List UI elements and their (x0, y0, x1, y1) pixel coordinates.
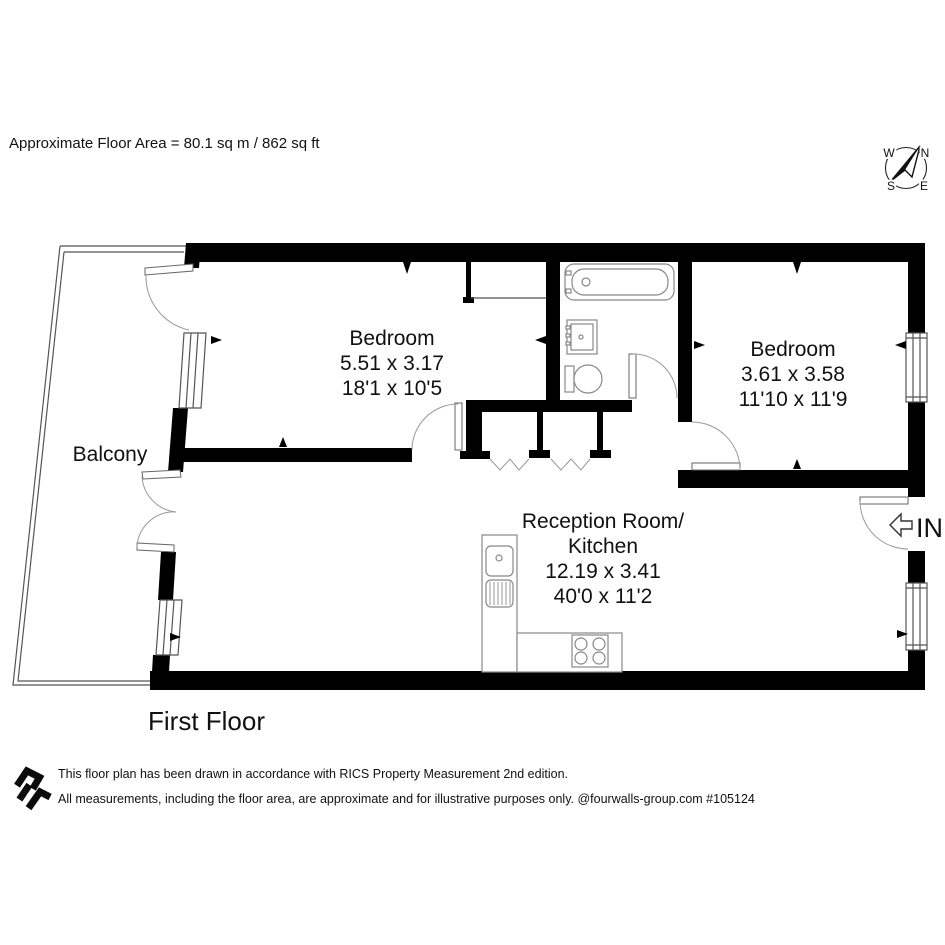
floor-area-note: Approximate Floor Area = 80.1 sq m / 862… (9, 135, 320, 152)
wall-right-2 (908, 400, 925, 497)
bedroom1-name: Bedroom (349, 327, 434, 350)
wall-closet-mid-foot (529, 450, 550, 458)
toilet (565, 365, 602, 393)
wall-left-corner (152, 655, 170, 672)
wall-left-mid (168, 408, 188, 472)
wall-closet-right-foot (590, 450, 611, 458)
reception-window (906, 583, 927, 650)
fourwalls-logo-icon (12, 767, 52, 811)
wall-closet-mid (537, 412, 543, 452)
entry-arrow-icon (890, 514, 912, 536)
bathroom-door (629, 354, 677, 398)
bathroom-sink (566, 320, 597, 354)
wall-right-1 (908, 262, 925, 335)
wall-bedroom2-west (678, 262, 692, 422)
wall-bedroom2-south (678, 470, 908, 488)
reception-label: Reception Room/ Kitchen 12.19 x 3.41 40'… (522, 510, 684, 608)
walls (150, 243, 925, 690)
balcony-label: Balcony (73, 443, 148, 466)
bedroom2-name: Bedroom (750, 338, 835, 361)
bathroom-fixtures (565, 264, 674, 393)
compass-east: E (920, 179, 928, 193)
reception-name-line1: Reception Room/ (522, 510, 684, 533)
balcony-window-lower (156, 600, 182, 655)
wall-closet-left-foot (460, 451, 490, 459)
bedroom1-metric: 5.51 x 3.17 (340, 352, 444, 375)
kitchen-sink (486, 546, 513, 607)
wall-bottom (150, 671, 925, 690)
compass-south: S (887, 179, 895, 193)
floorplan-drawing: W N S E Approximate Floor Area = 80.1 sq… (0, 0, 945, 945)
wall-top (186, 243, 925, 262)
footer-disclaimer-line1: This floor plan has been drawn in accord… (58, 767, 568, 781)
bedroom2-imperial: 11'10 x 11'9 (739, 388, 848, 411)
wall-bathroom-west (546, 262, 560, 402)
floor-level-label: First Floor (148, 706, 265, 736)
reception-name-line2: Kitchen (568, 535, 638, 558)
compass-west: W (883, 146, 895, 160)
bedroom1-imperial: 18'1 x 10'5 (342, 377, 442, 400)
wall-bedroom1-south (169, 448, 412, 462)
reception-metric: 12.19 x 3.41 (545, 560, 661, 583)
reception-imperial: 40'0 x 11'2 (554, 585, 653, 608)
footer-disclaimer-line2: All measurements, including the floor ar… (58, 792, 755, 806)
wall-closet-right (597, 412, 603, 452)
wall-nook-stub (466, 262, 471, 300)
balcony-french-doors (137, 470, 181, 552)
stove (572, 635, 608, 667)
closet-bifold-doors (490, 459, 590, 470)
bedroom1-door (412, 403, 462, 450)
bedroom2-label: Bedroom 3.61 x 3.58 11'10 x 11'9 (739, 338, 848, 411)
balcony-door-upper (145, 264, 193, 330)
wall-left-lower (158, 552, 176, 600)
entry-in-label: IN (916, 513, 943, 543)
bedroom2-metric: 3.61 x 3.58 (741, 363, 845, 386)
wall-right-3 (908, 551, 925, 585)
bathtub (565, 264, 674, 300)
compass: W N S E (883, 146, 929, 193)
bedroom2-door (692, 422, 740, 470)
compass-north: N (921, 146, 930, 160)
balcony-window-upper (179, 333, 206, 408)
bedroom1-label: Bedroom 5.51 x 3.17 18'1 x 10'5 (340, 327, 444, 400)
bedroom2-window (906, 333, 927, 402)
floorplan-page: W N S E Approximate Floor Area = 80.1 sq… (0, 0, 945, 945)
